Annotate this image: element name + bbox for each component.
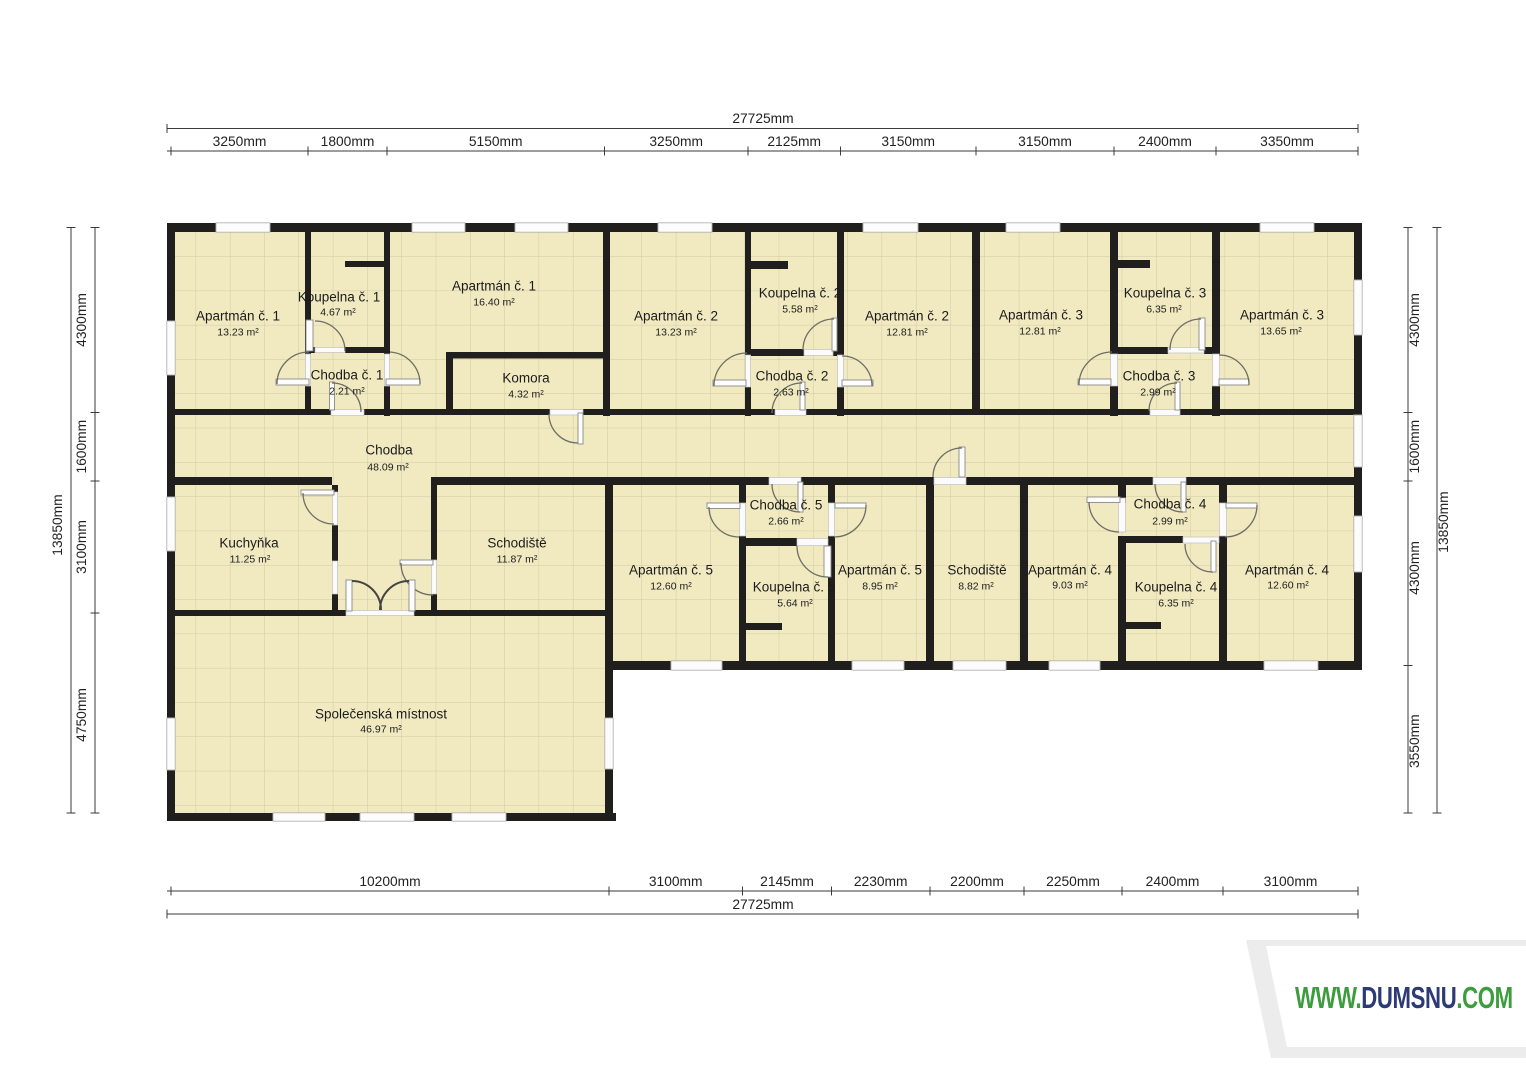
svg-text:4.32 m²: 4.32 m² bbox=[508, 389, 544, 401]
svg-text:10200mm: 10200mm bbox=[359, 874, 420, 889]
svg-text:Komora: Komora bbox=[502, 371, 550, 386]
svg-text:Chodba č. 1: Chodba č. 1 bbox=[311, 368, 384, 383]
svg-text:Apartmán č. 2: Apartmán č. 2 bbox=[865, 309, 949, 324]
svg-text:Koupelna č. 3: Koupelna č. 3 bbox=[1124, 286, 1207, 301]
svg-text:8.95 m²: 8.95 m² bbox=[862, 581, 898, 593]
svg-text:12.81 m²: 12.81 m² bbox=[1019, 326, 1061, 338]
svg-text:12.60 m²: 12.60 m² bbox=[650, 581, 692, 593]
svg-text:WWW.DUMSNU.COM: WWW.DUMSNU.COM bbox=[1295, 980, 1513, 1015]
svg-text:1600mm: 1600mm bbox=[1407, 420, 1422, 474]
svg-text:3100mm: 3100mm bbox=[1264, 874, 1318, 889]
svg-text:Apartmán č. 2: Apartmán č. 2 bbox=[634, 309, 718, 324]
svg-text:Apartmán č. 3: Apartmán č. 3 bbox=[999, 308, 1083, 323]
svg-text:Apartmán č. 5: Apartmán č. 5 bbox=[838, 563, 922, 578]
svg-text:2.66 m²: 2.66 m² bbox=[768, 516, 804, 528]
svg-text:Apartmán č. 1: Apartmán č. 1 bbox=[452, 279, 536, 294]
svg-text:3350mm: 3350mm bbox=[1260, 134, 1314, 149]
svg-text:5150mm: 5150mm bbox=[469, 134, 523, 149]
svg-text:11.25 m²: 11.25 m² bbox=[230, 554, 271, 566]
svg-text:3250mm: 3250mm bbox=[649, 134, 703, 149]
svg-text:2400mm: 2400mm bbox=[1146, 874, 1200, 889]
svg-text:6.35 m²: 6.35 m² bbox=[1158, 598, 1194, 610]
svg-text:8.82 m²: 8.82 m² bbox=[958, 581, 994, 593]
svg-text:27725mm: 27725mm bbox=[732, 897, 793, 912]
svg-text:9.03 m²: 9.03 m² bbox=[1052, 580, 1088, 592]
svg-text:13.23 m²: 13.23 m² bbox=[655, 327, 697, 339]
svg-text:Chodba č. 5: Chodba č. 5 bbox=[750, 498, 823, 513]
svg-text:5.64 m²: 5.64 m² bbox=[777, 598, 813, 610]
svg-text:Apartmán č. 4: Apartmán č. 4 bbox=[1028, 563, 1113, 578]
svg-text:13850mm: 13850mm bbox=[1436, 491, 1451, 552]
svg-text:1600mm: 1600mm bbox=[74, 420, 89, 474]
svg-text:Chodba č. 3: Chodba č. 3 bbox=[1123, 369, 1196, 384]
svg-text:2230mm: 2230mm bbox=[854, 874, 908, 889]
svg-text:2400mm: 2400mm bbox=[1138, 134, 1192, 149]
svg-text:2125mm: 2125mm bbox=[767, 134, 821, 149]
svg-text:5.58 m²: 5.58 m² bbox=[782, 304, 818, 316]
svg-text:2.99 m²: 2.99 m² bbox=[1152, 516, 1188, 528]
svg-text:46.97 m²: 46.97 m² bbox=[360, 724, 402, 736]
svg-text:1800mm: 1800mm bbox=[321, 134, 375, 149]
svg-text:13.23 m²: 13.23 m² bbox=[217, 327, 259, 339]
svg-text:Koupelna č. 2: Koupelna č. 2 bbox=[759, 286, 842, 301]
svg-text:4.67 m²: 4.67 m² bbox=[320, 307, 356, 319]
svg-text:Koupelna č. 5: Koupelna č. 5 bbox=[753, 580, 836, 595]
svg-text:Koupelna č. 4: Koupelna č. 4 bbox=[1135, 580, 1218, 595]
svg-text:2145mm: 2145mm bbox=[760, 874, 814, 889]
svg-text:Chodba č. 4: Chodba č. 4 bbox=[1134, 497, 1207, 512]
svg-text:Apartmán č. 5: Apartmán č. 5 bbox=[629, 563, 713, 578]
svg-text:Chodba: Chodba bbox=[365, 443, 413, 458]
svg-text:Apartmán č. 3: Apartmán č. 3 bbox=[1240, 308, 1324, 323]
svg-text:Schodiště: Schodiště bbox=[947, 563, 1006, 578]
svg-text:3100mm: 3100mm bbox=[74, 520, 89, 574]
svg-text:13.65 m²: 13.65 m² bbox=[1260, 326, 1302, 338]
svg-text:Apartmán č. 1: Apartmán č. 1 bbox=[196, 309, 280, 324]
svg-text:4300mm: 4300mm bbox=[1407, 541, 1422, 595]
svg-text:Koupelna č. 1: Koupelna č. 1 bbox=[298, 290, 381, 305]
svg-text:4300mm: 4300mm bbox=[74, 293, 89, 347]
svg-text:3150mm: 3150mm bbox=[1018, 134, 1072, 149]
svg-text:3250mm: 3250mm bbox=[213, 134, 267, 149]
svg-text:12.60 m²: 12.60 m² bbox=[1267, 580, 1309, 592]
svg-text:11.87 m²: 11.87 m² bbox=[497, 554, 538, 566]
svg-text:2.99 m²: 2.99 m² bbox=[1140, 387, 1176, 399]
svg-text:2.63 m²: 2.63 m² bbox=[773, 387, 809, 399]
svg-text:Apartmán č. 4: Apartmán č. 4 bbox=[1245, 563, 1330, 578]
svg-text:3550mm: 3550mm bbox=[1407, 714, 1422, 768]
svg-text:48.09 m²: 48.09 m² bbox=[367, 462, 409, 474]
svg-text:4750mm: 4750mm bbox=[74, 688, 89, 742]
svg-text:2250mm: 2250mm bbox=[1046, 874, 1100, 889]
svg-text:27725mm: 27725mm bbox=[732, 111, 793, 126]
svg-text:3150mm: 3150mm bbox=[881, 134, 935, 149]
svg-text:16.40 m²: 16.40 m² bbox=[473, 297, 515, 309]
svg-text:Společenská místnost: Společenská místnost bbox=[315, 707, 447, 722]
svg-text:2200mm: 2200mm bbox=[950, 874, 1004, 889]
svg-text:Schodiště: Schodiště bbox=[487, 536, 546, 551]
svg-text:Kuchyňka: Kuchyňka bbox=[219, 536, 279, 551]
svg-text:Chodba č. 2: Chodba č. 2 bbox=[756, 369, 829, 384]
svg-text:2.21 m²: 2.21 m² bbox=[329, 386, 365, 398]
svg-text:12.81 m²: 12.81 m² bbox=[886, 327, 928, 339]
svg-text:13850mm: 13850mm bbox=[50, 494, 65, 555]
svg-text:3100mm: 3100mm bbox=[649, 874, 703, 889]
svg-text:6.35 m²: 6.35 m² bbox=[1146, 304, 1182, 316]
svg-text:4300mm: 4300mm bbox=[1407, 293, 1422, 347]
